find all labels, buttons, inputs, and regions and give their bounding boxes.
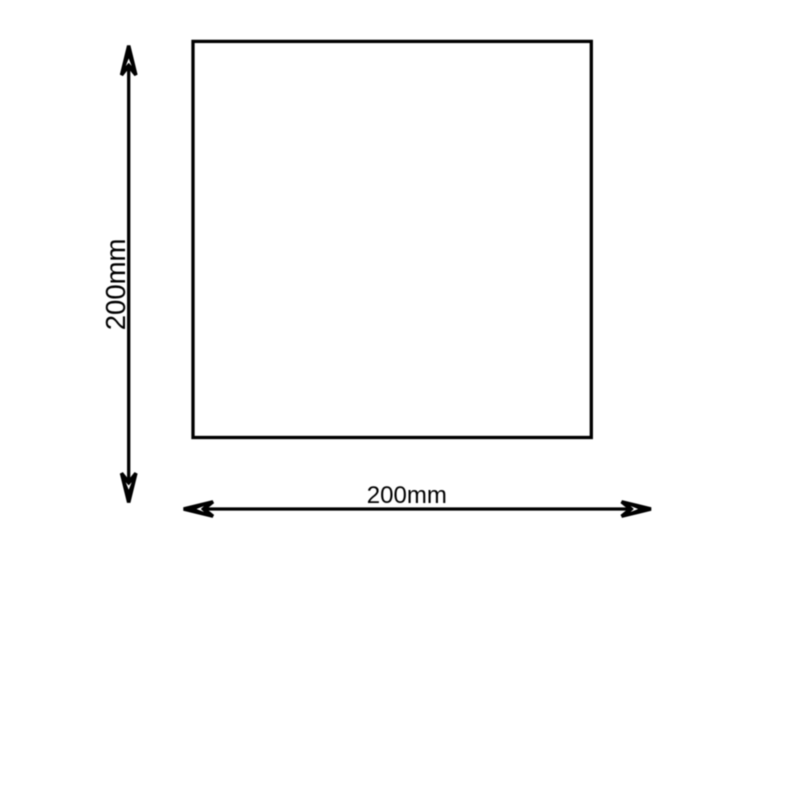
- svg-text:200mm: 200mm: [100, 239, 131, 331]
- svg-text:200mm: 200mm: [367, 482, 447, 509]
